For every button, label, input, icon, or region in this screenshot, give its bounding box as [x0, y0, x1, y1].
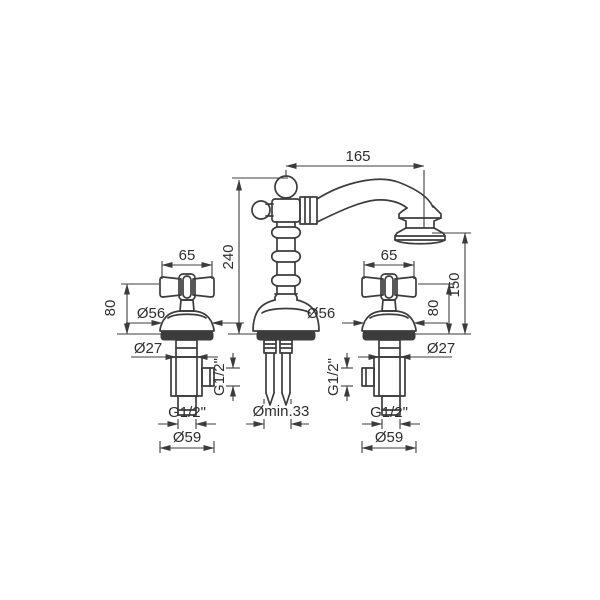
dim-side-outlet-thread-right: G1/2" [325, 353, 353, 401]
spout-head-body [272, 199, 300, 222]
dim-label-handle-height-right: 80 [425, 300, 442, 317]
dim-flange-diameter-left: Ø59 [160, 429, 214, 453]
left-base-bell [160, 311, 214, 331]
left-valve-assembly [160, 274, 214, 415]
dim-label-inlet-thread-left: G1/2" [168, 404, 206, 421]
dimension-annotations: 165 240 150 65 65 80 [102, 148, 471, 453]
right-side-outlet [362, 368, 374, 386]
dim-label-inlet-thread-right: G1/2" [370, 404, 408, 421]
dim-label-handle-width-left: 65 [179, 247, 196, 264]
spout-curve [317, 179, 433, 222]
spout-top-ball [275, 176, 297, 198]
dim-label-handle-base-diameter-left: Ø56 [137, 305, 165, 322]
spout-turned-column [272, 222, 301, 300]
dim-label-valve-stem-diameter-left: Ø27 [134, 340, 162, 357]
dim-valve-stem-diameter-right: Ø27 [358, 340, 455, 357]
dim-label-min-mounting-hole: Ømin.33 [253, 403, 310, 420]
dim-side-outlet-thread-left: G1/2" [211, 353, 240, 401]
spout-side-ball [252, 201, 273, 219]
dim-label-side-outlet-thread-left: G1/2" [211, 358, 228, 396]
dim-label-handle-height-left: 80 [102, 300, 119, 317]
dim-label-flange-diameter-left: Ø59 [173, 429, 201, 446]
dim-spout-reach: 165 [286, 148, 424, 228]
right-handle-neck [382, 300, 396, 311]
dim-label-handle-width-right: 65 [381, 247, 398, 264]
dim-label-total-height: 240 [220, 244, 237, 269]
spout-outlet-trumpet [395, 206, 445, 244]
dim-flange-diameter-right: Ø59 [362, 429, 416, 453]
right-base-gasket [363, 331, 415, 340]
supply-tails [264, 340, 292, 405]
left-handle-neck [180, 300, 194, 311]
dim-label-valve-stem-diameter-right: Ø27 [427, 340, 455, 357]
right-valve-assembly [362, 274, 416, 415]
faucet-technical-drawing: 165 240 150 65 65 80 [0, 0, 600, 600]
drawing-sheet: 165 240 150 65 65 80 [0, 0, 600, 600]
dim-valve-stem-diameter-left: Ø27 [131, 340, 218, 357]
left-cross-handle [160, 274, 214, 300]
dim-inlet-thread-right: G1/2" [362, 404, 420, 429]
left-base-gasket [161, 331, 213, 340]
dim-inlet-thread-left: G1/2" [158, 404, 216, 429]
spout-base-gasket [257, 331, 315, 340]
spout-collar-rings [300, 197, 317, 224]
dim-min-mounting-hole: Ømin.33 [246, 399, 309, 429]
right-base-bell [362, 311, 416, 331]
dim-label-side-outlet-thread-right: G1/2" [325, 358, 342, 396]
dim-handle-height-right: 80 [418, 284, 455, 334]
dim-label-handle-base-diameter-right: Ø56 [307, 305, 335, 322]
right-cross-handle [362, 274, 416, 300]
dim-label-flange-diameter-right: Ø59 [375, 429, 403, 446]
dim-label-spout-reach: 165 [345, 148, 370, 165]
dim-total-height: 240 [220, 178, 288, 334]
